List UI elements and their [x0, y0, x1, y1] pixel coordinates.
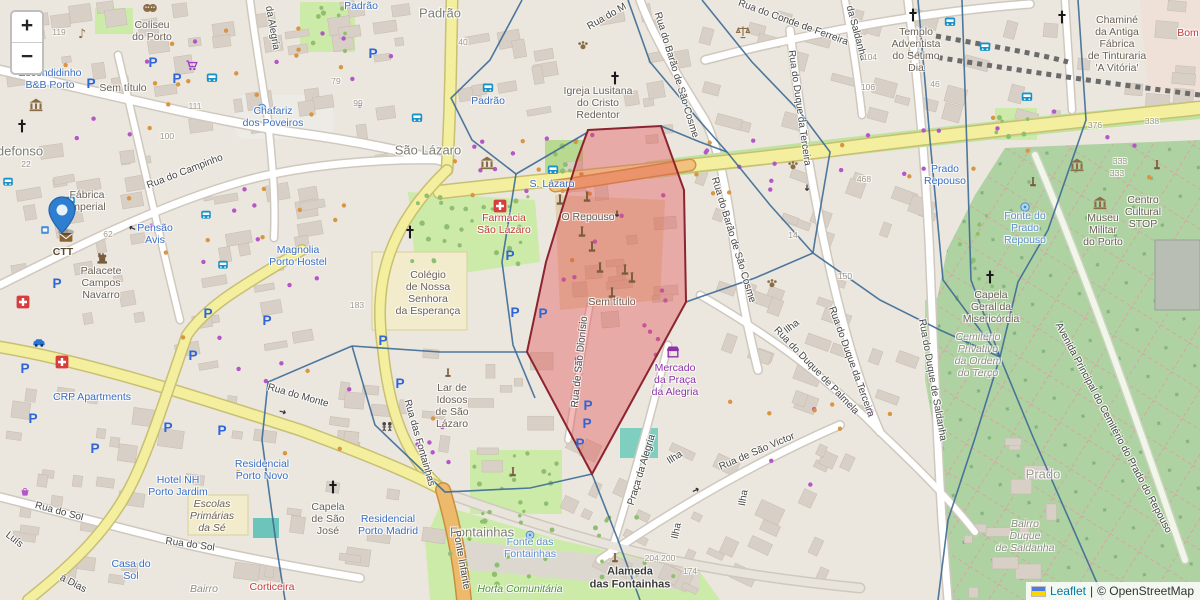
p-icon — [90, 441, 99, 456]
redcross-icon — [494, 200, 507, 213]
arrow-icon — [805, 185, 809, 191]
museum-icon — [481, 157, 494, 170]
p-icon — [575, 436, 584, 451]
bus-icon — [483, 83, 493, 91]
playground-icon — [382, 423, 391, 431]
church-icon — [986, 271, 993, 284]
highlighted-polygon[interactable] — [527, 126, 686, 474]
p-icon — [20, 361, 29, 376]
bus-icon — [1022, 92, 1032, 100]
p-icon — [52, 276, 61, 291]
bus-icon — [980, 42, 990, 50]
scales-icon — [737, 26, 750, 37]
statue-icon — [1030, 177, 1036, 186]
bus-icon — [412, 113, 422, 121]
p-icon — [172, 71, 181, 86]
taxi-icon — [33, 339, 44, 347]
museum-icon — [30, 99, 43, 112]
church-icon — [406, 226, 413, 239]
arrow-icon — [129, 225, 136, 231]
bus-icon — [218, 261, 228, 269]
map-overlays: P ♪ — [0, 0, 1200, 600]
bus-icon — [548, 165, 558, 173]
church-icon — [18, 120, 25, 133]
fountain-icon — [1021, 203, 1029, 211]
p-icon — [395, 376, 404, 391]
statue-icon — [510, 467, 516, 476]
attribution-bar: Leaflet | © OpenStreetMap — [1026, 582, 1200, 600]
p-icon — [86, 76, 95, 91]
fountain-icon — [526, 531, 534, 539]
leaflet-link[interactable]: Leaflet — [1050, 584, 1086, 598]
arrow-icon — [692, 487, 699, 493]
attribution-separator: | — [1090, 584, 1093, 598]
ukraine-flag-icon — [1031, 586, 1046, 597]
paw-icon — [788, 161, 797, 169]
bus-icon — [207, 73, 217, 81]
p-icon — [582, 416, 591, 431]
statue-icon — [445, 368, 450, 376]
statue-icon — [557, 194, 563, 204]
zoom-control: + − — [10, 10, 44, 75]
bus-icon — [201, 211, 211, 219]
redcross-icon — [17, 296, 30, 309]
music-icon — [78, 27, 86, 42]
bus-icon — [945, 17, 955, 25]
p-icon — [583, 398, 592, 413]
p-icon — [538, 306, 547, 321]
p-icon — [368, 46, 377, 61]
arrow-icon — [279, 409, 286, 414]
rook-icon — [97, 253, 107, 263]
p-icon — [378, 333, 387, 348]
church-icon — [909, 9, 916, 22]
museum-icon — [1094, 197, 1107, 210]
p-icon — [28, 411, 37, 426]
church-icon — [611, 72, 618, 85]
p-icon — [510, 305, 519, 320]
church-icon — [329, 481, 336, 494]
church-icon — [1058, 11, 1065, 24]
fountain-icon — [258, 104, 266, 112]
redcross-icon — [56, 356, 69, 369]
shoppurple-icon — [21, 488, 28, 495]
p-icon — [505, 248, 514, 263]
p-icon — [188, 348, 197, 363]
bus-icon — [3, 178, 13, 186]
leaflet-map[interactable]: P ♪ Coliseu do PortoSem títuloEscondidi — [0, 0, 1200, 600]
p-icon — [262, 313, 271, 328]
zoom-in-button[interactable]: + — [12, 12, 42, 43]
p-icon — [148, 55, 157, 70]
paw-icon — [767, 279, 776, 287]
cart-icon — [186, 61, 196, 70]
p-icon — [217, 423, 226, 438]
masks-icon — [143, 4, 157, 12]
p-icon — [163, 420, 172, 435]
marketstall-icon — [667, 347, 678, 357]
paw-icon — [578, 41, 587, 49]
map-marker[interactable] — [47, 196, 77, 236]
statue-icon — [612, 553, 618, 562]
osm-attribution: © OpenStreetMap — [1097, 584, 1194, 598]
p-icon — [203, 306, 212, 321]
zoom-out-button[interactable]: − — [12, 43, 42, 73]
statue-icon — [1154, 160, 1160, 169]
